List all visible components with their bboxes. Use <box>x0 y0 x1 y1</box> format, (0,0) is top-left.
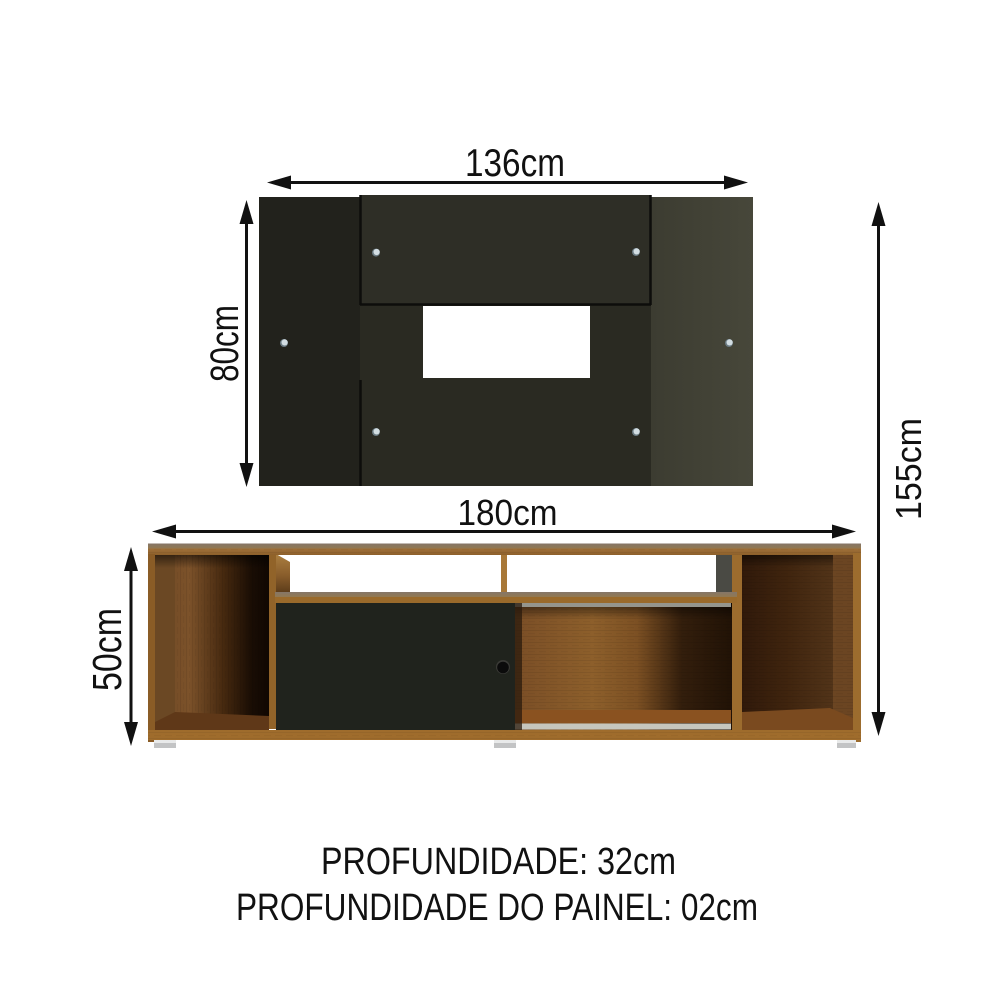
svg-text:155cm: 155cm <box>888 418 929 520</box>
svg-text:180cm: 180cm <box>458 492 558 533</box>
svg-text:50cm: 50cm <box>84 608 130 691</box>
svg-text:136cm: 136cm <box>465 142 565 185</box>
svg-text:PROFUNDIDADE DO PAINEL: 02cm: PROFUNDIDADE DO PAINEL: 02cm <box>236 887 758 929</box>
svg-text:PROFUNDIDADE: 32cm: PROFUNDIDADE: 32cm <box>321 841 676 883</box>
svg-text:80cm: 80cm <box>203 305 247 382</box>
